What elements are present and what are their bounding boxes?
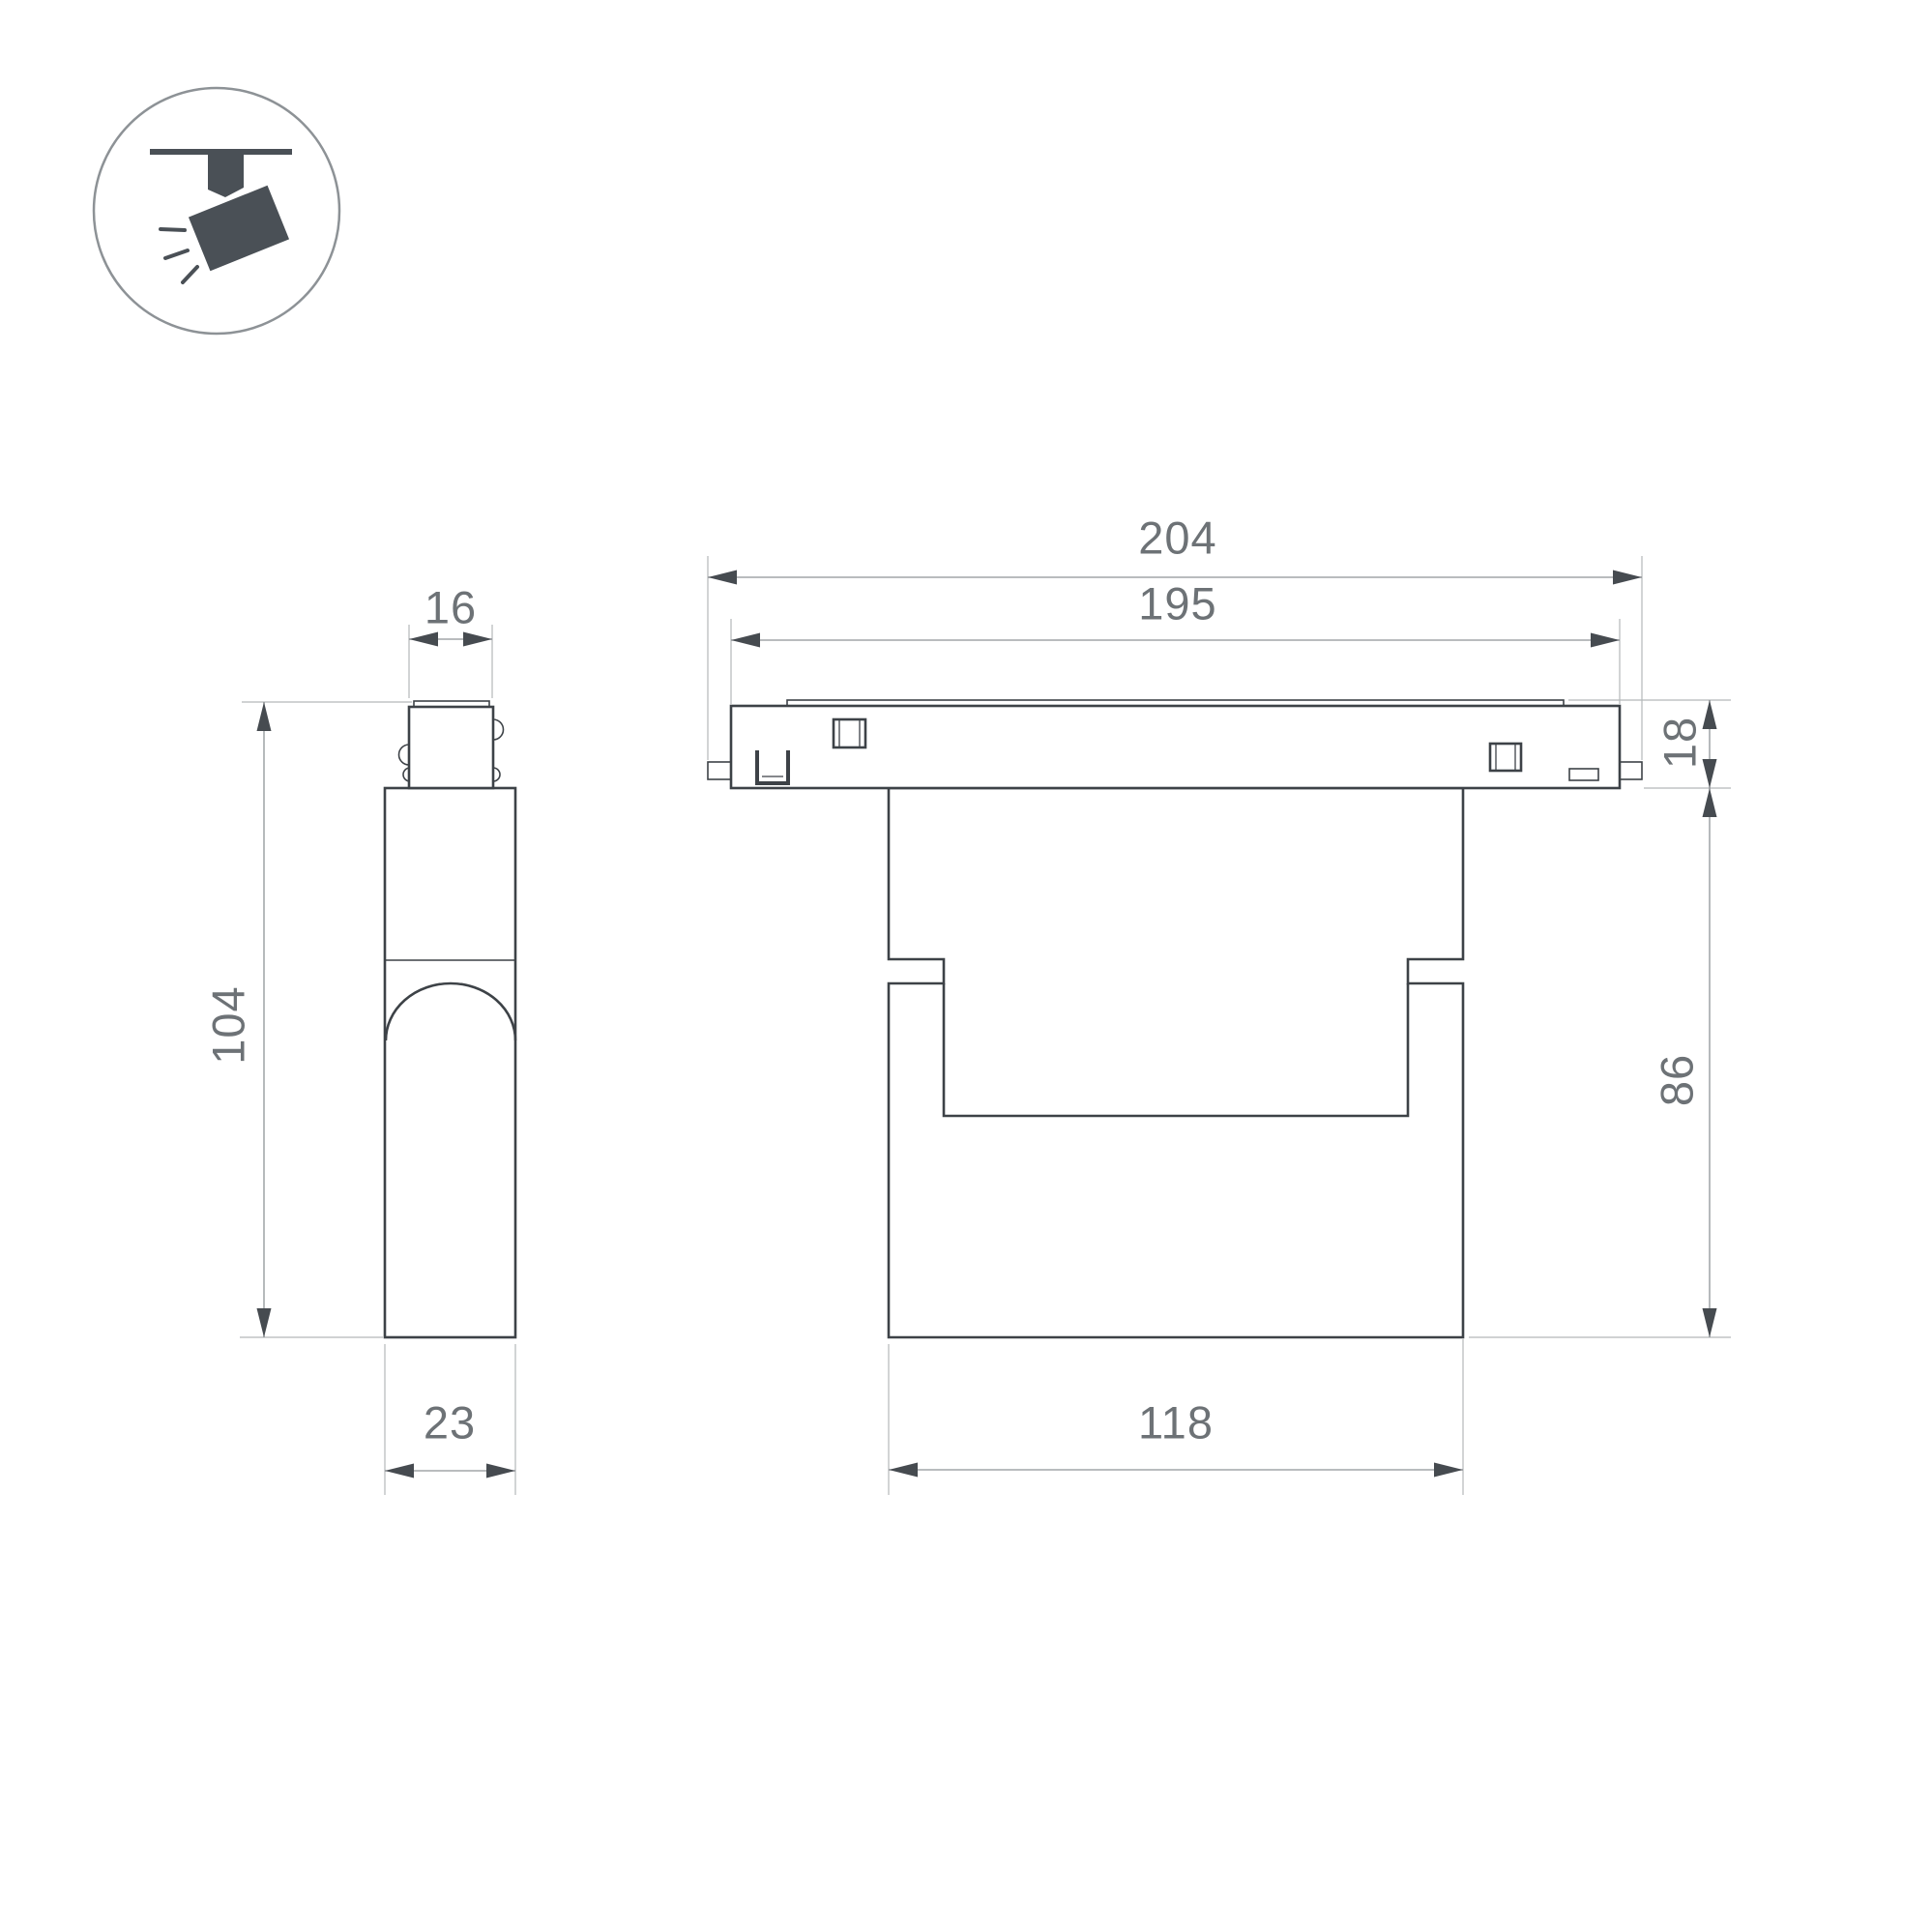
dim-label-overall-length: 204 [1138, 512, 1216, 563]
track-spotlight-icon [94, 88, 339, 334]
dim-label-overall-height: 104 [202, 985, 253, 1064]
side-view: 16 104 23 [202, 581, 515, 1495]
dimension-overall-height: 104 [202, 702, 271, 1337]
adapter-clip-right [493, 719, 504, 740]
dimension-body-height: 86 [1651, 788, 1716, 1337]
dimension-track-height: 18 [1654, 700, 1716, 788]
dim-label-head-length: 118 [1138, 1396, 1214, 1448]
front-view: 204 195 18 86 118 [708, 512, 1731, 1495]
icon-light-rays [161, 229, 197, 282]
dim-label-adapter-width: 16 [424, 581, 477, 632]
side-track-adapter [399, 701, 504, 788]
dim-label-body-height: 86 [1651, 1054, 1702, 1106]
icon-lamp-head [189, 186, 289, 272]
adapter-clip-left [399, 745, 410, 765]
technical-drawing-page: 16 104 23 [0, 0, 1932, 1932]
icon-mount-stem [208, 153, 244, 197]
dimension-body-length: 195 [731, 577, 1620, 647]
track-end-tab-right [1620, 762, 1642, 779]
track-end-tab-left [708, 762, 731, 779]
dim-label-body-depth: 23 [424, 1396, 476, 1448]
front-lamp-body [889, 788, 1463, 1337]
dim-label-body-length: 195 [1138, 577, 1216, 629]
dimension-overall-length: 204 [708, 512, 1642, 584]
adapter-body [409, 707, 493, 788]
dim-label-track-height: 18 [1654, 717, 1705, 769]
dimension-head-length: 118 [889, 1396, 1463, 1477]
dimension-adapter-width: 16 [409, 581, 492, 646]
dimension-drawing-track-light: 16 104 23 [0, 0, 1932, 1932]
dimension-body-depth: 23 [385, 1396, 515, 1478]
side-lamp-body [385, 788, 515, 1337]
